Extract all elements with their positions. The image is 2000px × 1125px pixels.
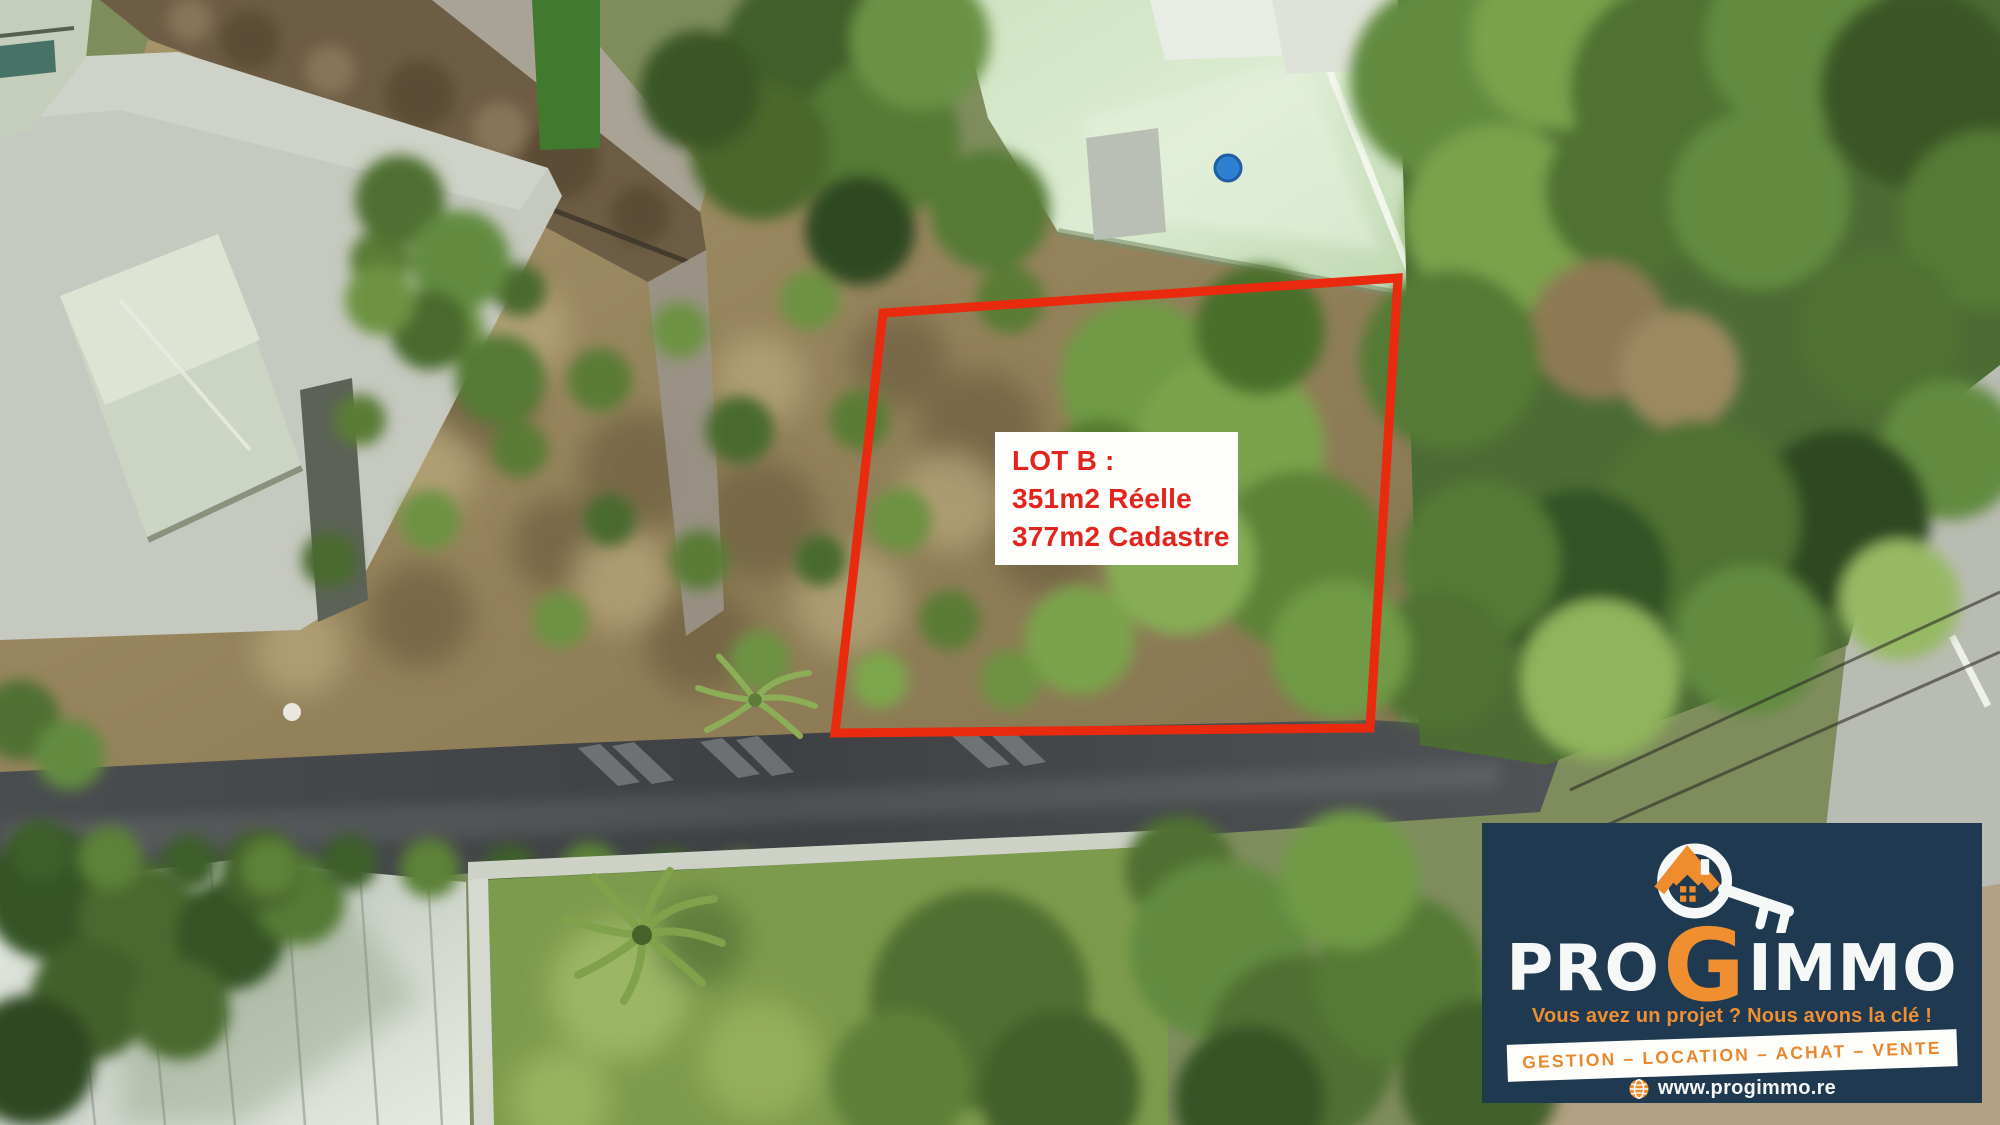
lot-label-box: LOT B : 351m2 Réelle 377m2 Cadastre [995, 432, 1238, 565]
lot-title: LOT B : [1012, 443, 1238, 479]
website-url: www.progimmo.re [1658, 1077, 1836, 1100]
white-rock [283, 703, 301, 721]
brand-pro: PRO [1506, 937, 1660, 1001]
website-row: www.progimmo.re [1482, 1077, 1982, 1100]
green-turf-fence [532, 0, 600, 150]
aerial-lot-photo: LOT B : 351m2 Réelle 377m2 Cadastre PRO … [0, 0, 2000, 1125]
brand-wordmark: PRO G IMMO [1482, 929, 1982, 1009]
brand-g: G [1663, 916, 1745, 1016]
blue-water-tank [1215, 155, 1241, 181]
agency-brand-panel: PRO G IMMO Vous avez un projet ? Nous av… [1482, 823, 1982, 1103]
brand-tagline: Vous avez un projet ? Nous avons la clé … [1482, 1005, 1982, 1028]
lot-area-real: 351m2 Réelle [1012, 481, 1238, 517]
gray-shed [1086, 128, 1166, 240]
walled-garden [468, 830, 1168, 1125]
teal-roof-edge [0, 40, 56, 78]
brand-immo: IMMO [1748, 937, 1958, 1001]
services-banner: GESTION – LOCATION – ACHAT – VENTE [1507, 1029, 1958, 1082]
globe-icon [1628, 1078, 1650, 1100]
lot-area-cadastre: 377m2 Cadastre [1012, 519, 1238, 555]
